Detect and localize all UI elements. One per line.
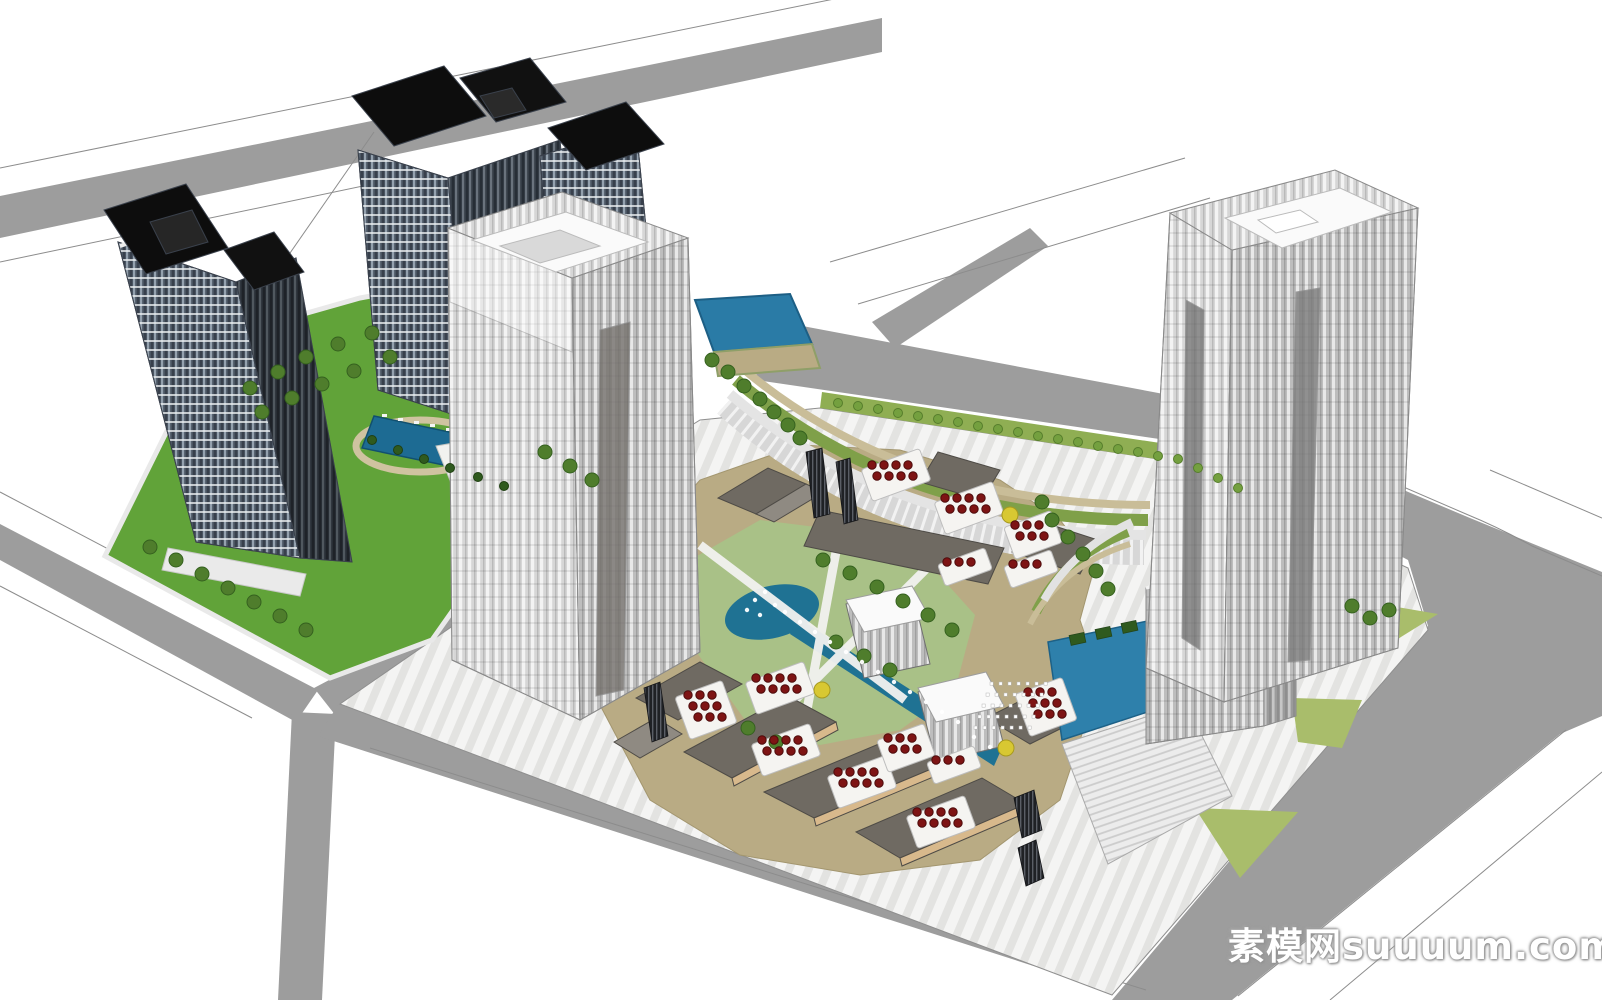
umbrella	[775, 747, 783, 755]
dark-tree	[169, 553, 183, 567]
amphitheater-seat	[1018, 704, 1021, 707]
umbrella	[955, 558, 963, 566]
dark-tree	[1035, 495, 1049, 509]
hedge-tree	[1134, 448, 1143, 457]
dark-tree	[1089, 564, 1103, 578]
umbrella	[1028, 532, 1036, 540]
dark-tree	[843, 566, 857, 580]
umbrella	[863, 779, 871, 787]
amphitheater-seat	[982, 704, 985, 707]
umbrella	[1009, 560, 1017, 568]
umbrella	[851, 779, 859, 787]
fountain-jet	[844, 650, 848, 654]
watermark: 素模网suuuum.com	[1228, 916, 1602, 970]
amphitheater-seat	[1031, 693, 1034, 696]
umbrella	[1040, 532, 1048, 540]
umbrella	[896, 734, 904, 742]
hedge-tree	[854, 402, 863, 411]
office-tower-central	[448, 192, 700, 720]
amphitheater-seat	[1017, 682, 1020, 685]
amphitheater-seat	[1044, 682, 1047, 685]
umbrella	[918, 819, 926, 827]
dark-tree	[247, 595, 261, 609]
hedge-tree	[834, 399, 843, 408]
fountain-jet	[813, 630, 817, 634]
dark-tree	[945, 623, 959, 637]
umbrella	[708, 691, 716, 699]
umbrella	[967, 558, 975, 566]
umbrella	[1046, 710, 1054, 718]
dark-tree	[221, 581, 235, 595]
fountain-jet	[745, 608, 749, 612]
dark-tree	[315, 377, 329, 391]
dark-tree	[1345, 599, 1359, 613]
umbrella	[868, 461, 876, 469]
amphitheater-seat	[1026, 682, 1029, 685]
umbrella	[1021, 560, 1029, 568]
umbrella	[901, 745, 909, 753]
dark-tree	[816, 553, 830, 567]
umbrella	[713, 702, 721, 710]
palm-tree	[446, 464, 455, 473]
palm-tree	[368, 436, 377, 445]
umbrella	[763, 747, 771, 755]
fountain-jet	[828, 640, 832, 644]
tower-window-column	[596, 322, 630, 696]
fountain-jet	[773, 603, 777, 607]
amphitheater-seat	[1000, 704, 1003, 707]
amphitheater-seat	[1022, 693, 1025, 696]
hedge-tree	[1054, 435, 1063, 444]
umbrella	[953, 494, 961, 502]
umbrella	[982, 505, 990, 513]
dark-tree	[737, 379, 751, 393]
amphitheater-seat	[991, 704, 994, 707]
umbrella	[701, 702, 709, 710]
umbrella	[873, 472, 881, 480]
umbrella	[764, 674, 772, 682]
dark-tree	[1382, 603, 1396, 617]
umbrella	[965, 494, 973, 502]
dark-tree	[538, 445, 552, 459]
hedge-tree	[954, 418, 963, 427]
fountain-jet	[860, 660, 864, 664]
umbrella	[1048, 688, 1056, 696]
umbrella	[776, 674, 784, 682]
dark-tree	[767, 405, 781, 419]
amphitheater-seat	[978, 715, 981, 718]
fountain-jet	[798, 620, 802, 624]
dark-tree	[271, 365, 285, 379]
umbrella	[937, 808, 945, 816]
umbrella	[946, 505, 954, 513]
dark-tree	[1101, 582, 1115, 596]
umbrella	[770, 736, 778, 744]
umbrella	[1058, 710, 1066, 718]
amphitheater-seat	[1019, 726, 1022, 729]
amphitheater-seat	[1008, 682, 1011, 685]
umbrella	[782, 736, 790, 744]
hedge-tree	[914, 412, 923, 421]
umbrella	[930, 819, 938, 827]
fountain-jet	[988, 745, 992, 749]
dark-tree	[1045, 513, 1059, 527]
umbrella	[884, 734, 892, 742]
umbrella	[913, 745, 921, 753]
amphitheater-seat	[974, 726, 977, 729]
podium-roof-pool	[695, 294, 812, 352]
umbrella	[909, 472, 917, 480]
dark-tree	[781, 418, 795, 432]
dark-tree	[563, 459, 577, 473]
amphitheater-seat	[1001, 726, 1004, 729]
fountain-jet	[908, 690, 912, 694]
hedge-tree	[1034, 432, 1043, 441]
umbrella	[942, 819, 950, 827]
umbrella	[977, 494, 985, 502]
umbrella	[696, 691, 704, 699]
umbrella	[880, 461, 888, 469]
dark-tree	[705, 353, 719, 367]
umbrella	[1053, 699, 1061, 707]
dark-tree	[383, 350, 397, 364]
yellow-tree	[998, 740, 1014, 756]
umbrella	[943, 558, 951, 566]
umbrella	[875, 779, 883, 787]
dark-tree	[883, 663, 897, 677]
umbrella	[925, 808, 933, 816]
umbrella	[752, 674, 760, 682]
amphitheater-seat	[996, 715, 999, 718]
amphitheater-seat	[1014, 715, 1017, 718]
umbrella	[839, 779, 847, 787]
umbrella	[788, 674, 796, 682]
dark-tree	[753, 392, 767, 406]
dark-tree	[857, 649, 871, 663]
umbrella	[1033, 560, 1041, 568]
umbrella	[787, 747, 795, 755]
amphitheater-seat	[983, 726, 986, 729]
fountain-jet	[783, 610, 787, 614]
dark-tree	[741, 721, 755, 735]
amphitheater-seat	[987, 715, 990, 718]
umbrella	[944, 756, 952, 764]
palm-tree	[500, 482, 509, 491]
dark-tree	[331, 337, 345, 351]
umbrella	[781, 685, 789, 693]
fountain-jet	[758, 613, 762, 617]
umbrella	[769, 685, 777, 693]
amphitheater-seat	[1035, 682, 1038, 685]
fountain-jet	[924, 700, 928, 704]
dark-tree	[1061, 530, 1075, 544]
fountain-jet	[972, 735, 976, 739]
dark-tree	[299, 350, 313, 364]
umbrella	[1016, 532, 1024, 540]
umbrella	[892, 461, 900, 469]
umbrella	[757, 685, 765, 693]
umbrella	[758, 736, 766, 744]
amphitheater-seat	[1013, 693, 1016, 696]
tower-window-column	[1182, 300, 1204, 650]
dark-tree	[243, 381, 257, 395]
amphitheater-seat	[1010, 726, 1013, 729]
dark-tree	[870, 580, 884, 594]
hedge-tree	[1174, 455, 1183, 464]
umbrella	[694, 713, 702, 721]
amphitheater-seat	[990, 682, 993, 685]
amphitheater-seat	[1032, 715, 1035, 718]
umbrella	[684, 691, 692, 699]
dark-tree	[1076, 547, 1090, 561]
amphitheater-seat	[1036, 704, 1039, 707]
dark-tree	[365, 326, 379, 340]
umbrella	[908, 734, 916, 742]
amphitheater-seat	[1028, 726, 1031, 729]
umbrella	[1041, 699, 1049, 707]
umbrella	[689, 702, 697, 710]
umbrella	[846, 768, 854, 776]
dark-tree	[585, 473, 599, 487]
umbrella	[1035, 521, 1043, 529]
dark-tree	[299, 623, 313, 637]
amphitheater-seat	[1005, 715, 1008, 718]
amphitheater-seat	[992, 726, 995, 729]
umbrella	[718, 713, 726, 721]
hedge-tree	[1014, 428, 1023, 437]
umbrella	[870, 768, 878, 776]
umbrella	[958, 505, 966, 513]
fountain-jet	[876, 670, 880, 674]
umbrella	[941, 494, 949, 502]
fountain-jet	[753, 598, 757, 602]
fountain-jet	[763, 590, 767, 594]
dark-tree	[347, 364, 361, 378]
dark-tree	[143, 540, 157, 554]
hedge-tree	[1094, 442, 1103, 451]
amphitheater-seat	[1027, 704, 1030, 707]
fountain-jet	[892, 680, 896, 684]
architectural-render: 素模网suuuum.com	[0, 0, 1602, 1000]
umbrella	[1023, 521, 1031, 529]
umbrella	[970, 505, 978, 513]
umbrella	[834, 768, 842, 776]
umbrella	[799, 747, 807, 755]
umbrella	[793, 685, 801, 693]
dark-tree	[921, 608, 935, 622]
hedge-tree	[1114, 445, 1123, 454]
hedge-tree	[1234, 484, 1243, 493]
umbrella	[1011, 521, 1019, 529]
tower-right-face	[1224, 208, 1418, 702]
amphitheater-seat	[995, 693, 998, 696]
amphitheater-seat	[1004, 693, 1007, 696]
umbrella	[885, 472, 893, 480]
palm-tree	[474, 473, 483, 482]
hedge-tree	[934, 415, 943, 424]
hedge-tree	[1074, 438, 1083, 447]
umbrella	[904, 461, 912, 469]
masterplan-3d-view	[0, 0, 1602, 1000]
dark-tree	[721, 365, 735, 379]
dark-tree	[793, 431, 807, 445]
hedge-tree	[874, 405, 883, 414]
hedge-tree	[1154, 452, 1163, 461]
umbrella	[954, 819, 962, 827]
amphitheater-seat	[1040, 693, 1043, 696]
palm-tree	[394, 446, 403, 455]
dark-tree	[255, 405, 269, 419]
umbrella	[932, 756, 940, 764]
watermark-text: 素模网suuuum.com	[1228, 925, 1602, 968]
hedge-tree	[1194, 464, 1203, 473]
office-tower-east	[1146, 170, 1418, 702]
palm-tree	[420, 455, 429, 464]
dark-tree	[273, 609, 287, 623]
fountain-jet	[940, 710, 944, 714]
amphitheater-seat	[986, 693, 989, 696]
dark-tree	[896, 594, 910, 608]
dark-tree	[285, 391, 299, 405]
umbrella	[706, 713, 714, 721]
hedge-tree	[994, 425, 1003, 434]
dark-tree	[195, 567, 209, 581]
amphitheater-seat	[999, 682, 1002, 685]
hedge-tree	[1214, 474, 1223, 483]
hedge-tree	[894, 409, 903, 418]
umbrella	[956, 756, 964, 764]
umbrella	[858, 768, 866, 776]
umbrella	[794, 736, 802, 744]
dark-tree	[1363, 611, 1377, 625]
umbrella	[913, 808, 921, 816]
yellow-tree	[814, 682, 830, 698]
amphitheater-seat	[1009, 704, 1012, 707]
umbrella	[949, 808, 957, 816]
fountain-jet	[956, 720, 960, 724]
umbrella	[897, 472, 905, 480]
amphitheater-seat	[1023, 715, 1026, 718]
hedge-tree	[974, 422, 983, 431]
umbrella	[889, 745, 897, 753]
